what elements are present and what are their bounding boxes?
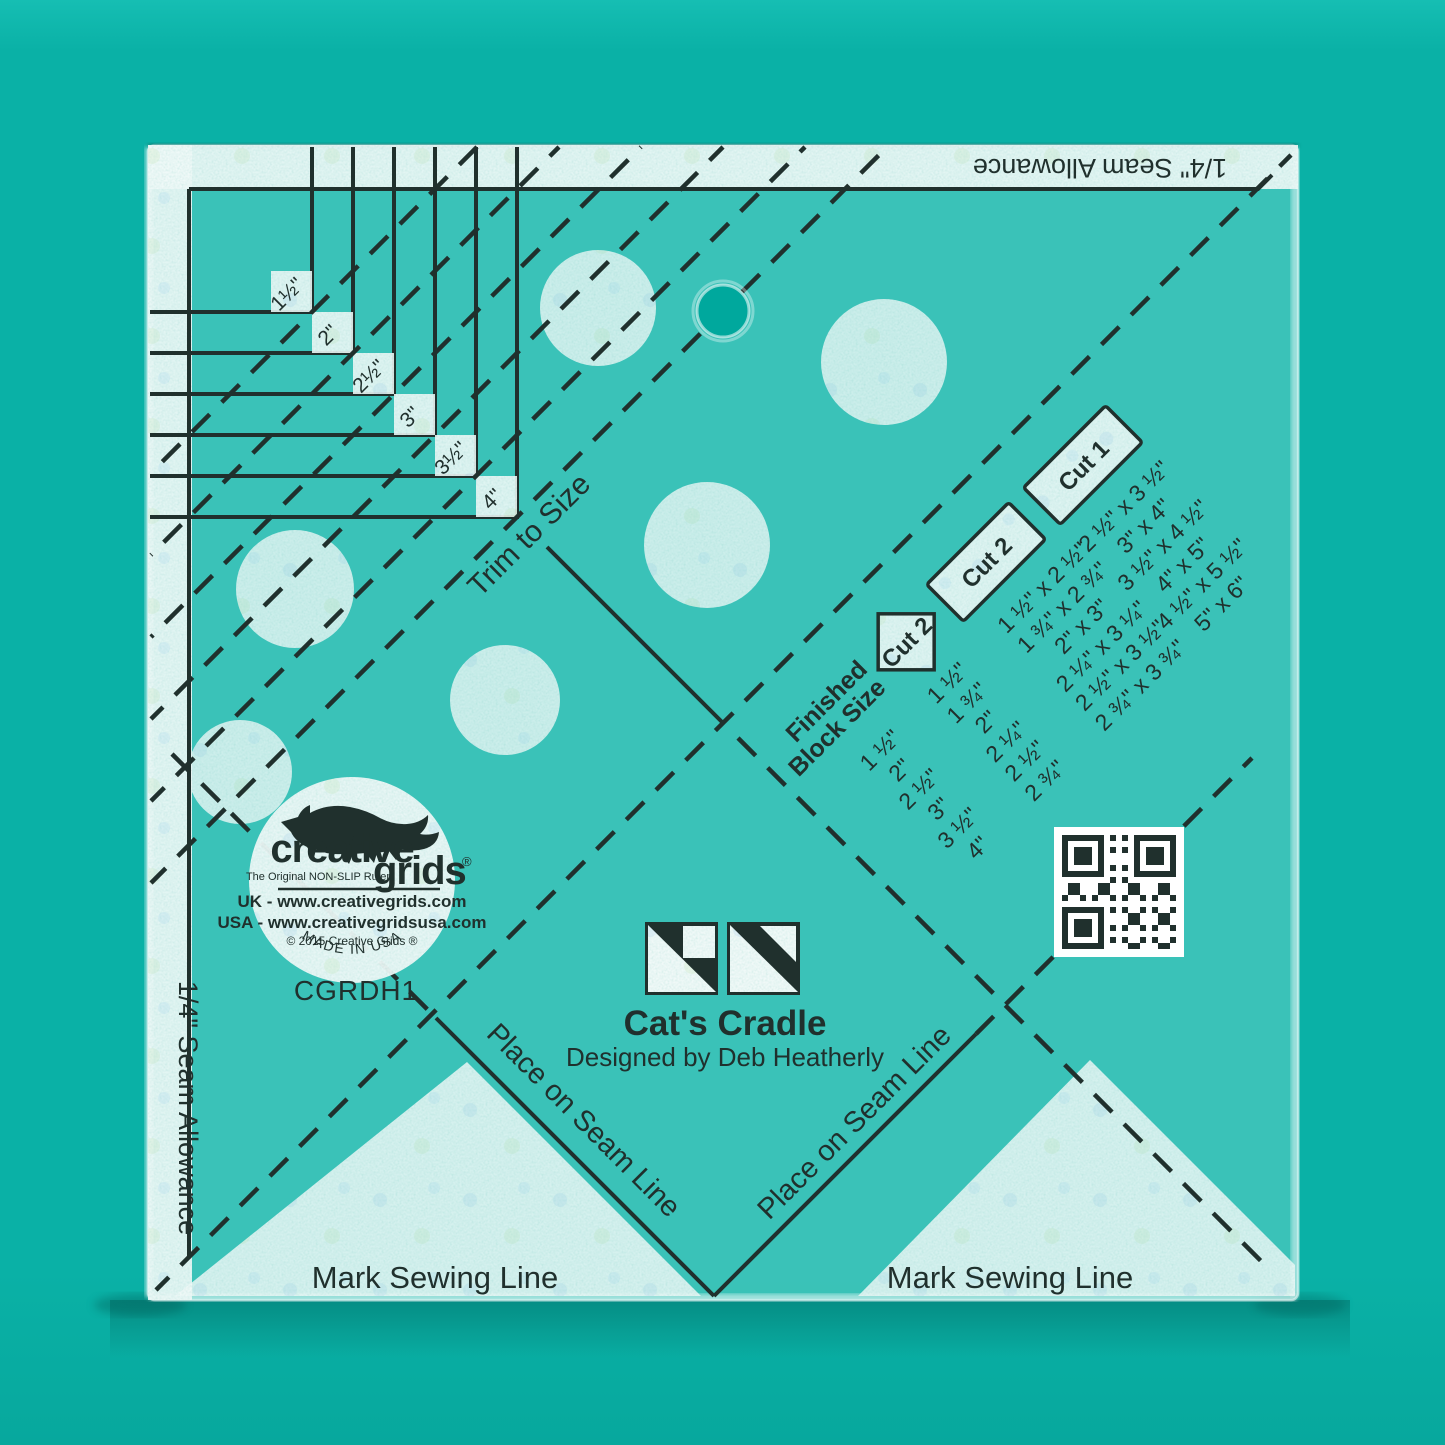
grip-dot [188, 720, 292, 824]
mark-sewing-line-left-label: Mark Sewing Line [312, 1260, 558, 1295]
product-sku: CGRDH1 [294, 975, 418, 1006]
grip-dot [450, 645, 560, 755]
product-designer: Designed by Deb Heatherly [566, 1042, 884, 1072]
ruler-edge-right-glow [1291, 147, 1299, 1297]
hanging-hole [693, 281, 753, 341]
seam-allowance-left-label: 1/4" Seam Allowance [173, 981, 203, 1235]
brand-registered: ® [462, 854, 472, 869]
seam-allowance-top-label: 1/4" Seam Allowance [973, 153, 1227, 183]
mark-sewing-line-right-label: Mark Sewing Line [887, 1260, 1133, 1295]
logo-uk-url: UK - www.creativegrids.com [238, 892, 467, 911]
qr-code [1054, 827, 1184, 957]
ruler-illustration: 1½" 2" 2½" 3" 3½" 4" 1/4" Seam Allowance… [0, 0, 1445, 1445]
product-photo-stage: 1½" 2" 2½" 3" 3½" 4" 1/4" Seam Allowance… [0, 0, 1445, 1445]
grip-dot [540, 250, 656, 366]
grip-dot [821, 299, 947, 425]
grip-dot [236, 530, 354, 648]
grip-dot [644, 482, 770, 608]
logo-usa-url: USA - www.creativegridsusa.com [218, 913, 487, 932]
product-name: Cat's Cradle [624, 1004, 827, 1043]
ruler-floor-shadow [110, 1300, 1350, 1358]
brand-tagline: The Original NON-SLIP Ruler [246, 871, 390, 883]
